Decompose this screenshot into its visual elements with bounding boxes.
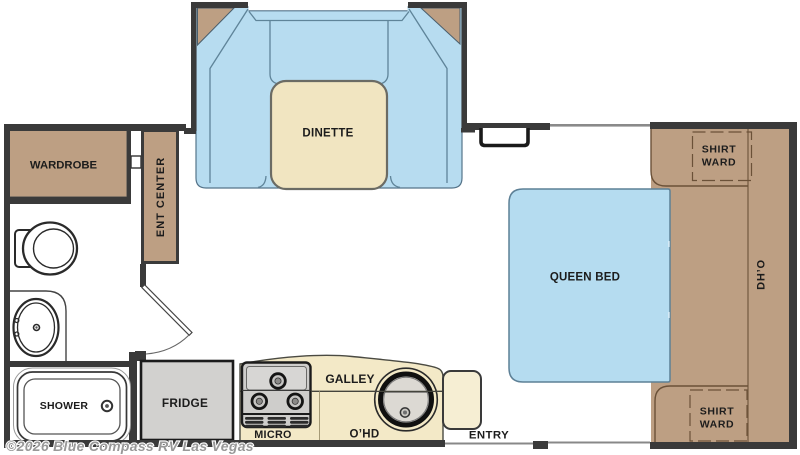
svg-text:ENTRY: ENTRY — [469, 430, 509, 442]
svg-text:SHIRT: SHIRT — [700, 406, 735, 418]
svg-text:FRIDGE: FRIDGE — [162, 396, 208, 410]
svg-text:ENT CENTER: ENT CENTER — [155, 157, 167, 237]
svg-text:DINETTE: DINETTE — [302, 128, 353, 140]
svg-text:WARD: WARD — [702, 157, 736, 169]
svg-text:GALLEY: GALLEY — [325, 372, 374, 386]
svg-text:O’HD: O’HD — [350, 429, 380, 441]
svg-text:QUEEN BED: QUEEN BED — [550, 272, 620, 284]
svg-text:SHOWER: SHOWER — [40, 400, 89, 412]
svg-text:WARD: WARD — [700, 419, 734, 431]
svg-text:©2026 Blue Compass RV Las Vega: ©2026 Blue Compass RV Las Vegas — [6, 438, 254, 454]
svg-text:MICRO: MICRO — [254, 429, 292, 441]
svg-text:WARDROBE: WARDROBE — [30, 160, 98, 172]
svg-text:DH’O: DH’O — [756, 259, 768, 290]
svg-text:SHIRT: SHIRT — [702, 144, 737, 156]
